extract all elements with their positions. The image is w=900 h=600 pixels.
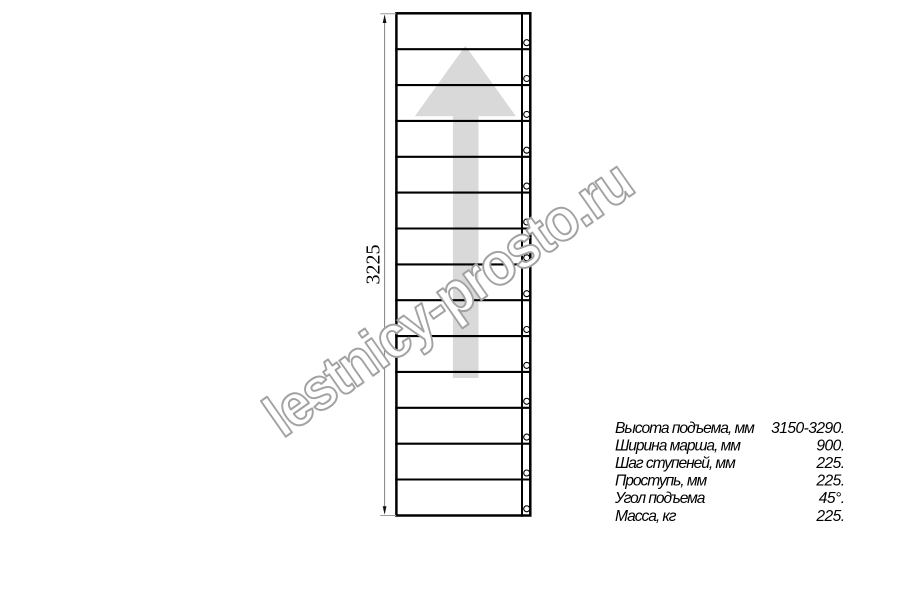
svg-text:Масса, кг: Масса, кг <box>615 508 677 525</box>
svg-text:3150-3290.: 3150-3290. <box>771 420 844 437</box>
svg-text:900.: 900. <box>816 438 844 455</box>
svg-text:Угол подъема: Угол подъема <box>614 490 706 507</box>
svg-text:Шаг ступеней, мм: Шаг ступеней, мм <box>615 455 736 472</box>
svg-text:Высота подъема, мм: Высота подъема, мм <box>615 420 755 437</box>
svg-text:45°.: 45°. <box>819 490 845 507</box>
svg-text:Ширина марша, мм: Ширина марша, мм <box>615 438 741 455</box>
svg-text:225.: 225. <box>815 473 844 490</box>
svg-text:3225: 3225 <box>362 245 384 285</box>
svg-text:225.: 225. <box>815 455 844 472</box>
svg-text:225.: 225. <box>815 508 844 525</box>
svg-text:Проступь, мм: Проступь, мм <box>615 473 707 490</box>
